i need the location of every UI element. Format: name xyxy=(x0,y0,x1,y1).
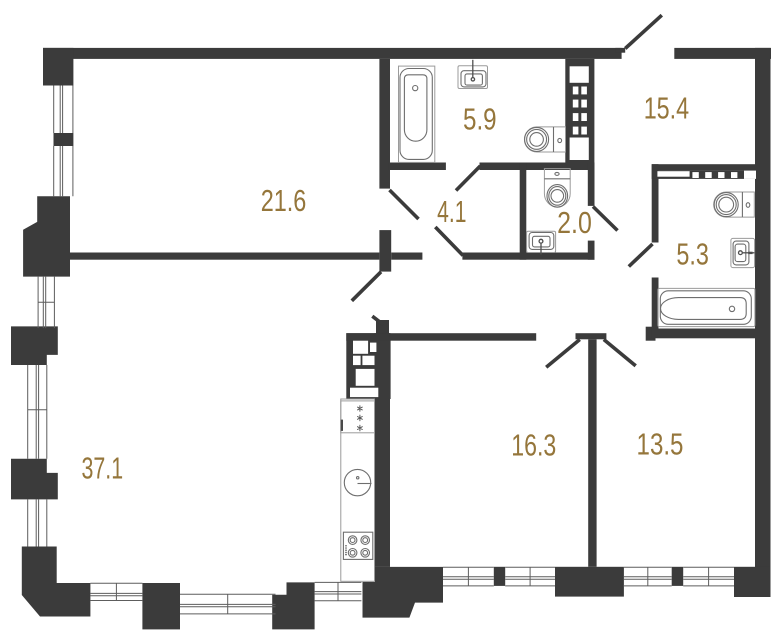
svg-text:5.3: 5.3 xyxy=(676,236,709,271)
svg-text:2.0: 2.0 xyxy=(557,205,592,240)
svg-text:15.4: 15.4 xyxy=(644,91,689,126)
svg-text:4.1: 4.1 xyxy=(437,194,466,229)
svg-text:21.6: 21.6 xyxy=(261,183,307,218)
svg-text:16.3: 16.3 xyxy=(511,427,556,462)
svg-text:13.5: 13.5 xyxy=(637,427,684,462)
svg-text:37.1: 37.1 xyxy=(82,451,124,486)
svg-text:5.9: 5.9 xyxy=(463,102,497,137)
